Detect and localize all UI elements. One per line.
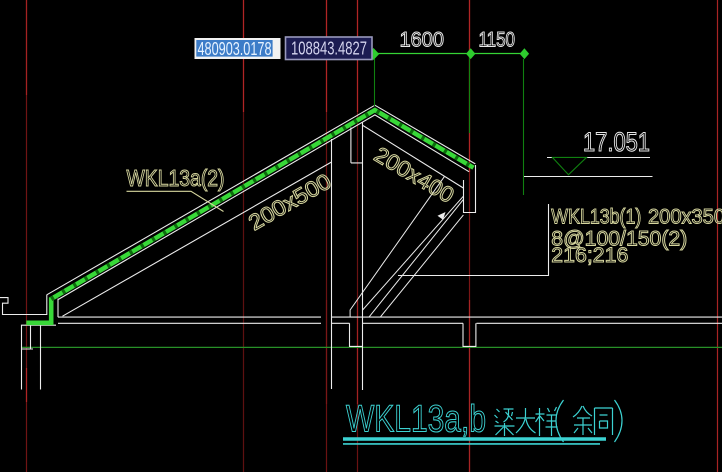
svg-text:17.051: 17.051 [583,127,650,157]
svg-text:108843.4827: 108843.4827 [291,38,367,59]
svg-text:1150: 1150 [479,28,516,52]
svg-text:WKL13a(2): WKL13a(2) [127,165,225,191]
svg-text:480903.0178: 480903.0178 [198,38,272,59]
svg-text:216;216: 216;216 [551,243,628,267]
svg-text:200x350: 200x350 [648,205,722,229]
svg-text:WKL13a,b: WKL13a,b [346,399,486,441]
svg-text:1600: 1600 [400,28,445,52]
svg-text:WKL13b(1): WKL13b(1) [551,205,641,229]
